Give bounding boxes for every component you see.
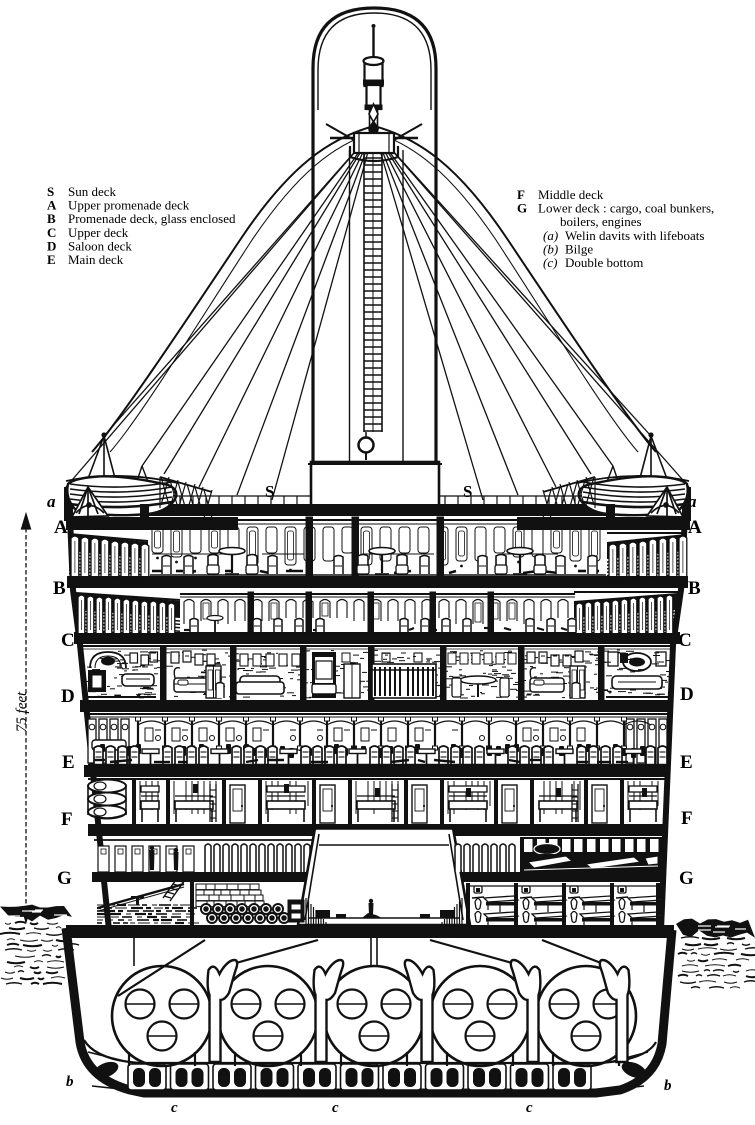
svg-text:c: c [526,1100,533,1116]
svg-text:C: C [61,630,75,651]
svg-text:a: a [47,492,56,511]
svg-text:b: b [664,1078,672,1094]
svg-text:D: D [61,686,75,707]
svg-text:c: c [171,1100,178,1116]
svg-text:Main deck: Main deck [68,252,124,267]
svg-text:B: B [53,578,66,599]
svg-text:(c): (c) [543,255,557,270]
svg-text:S: S [265,482,274,501]
svg-text:E: E [62,752,75,773]
svg-text:F: F [61,809,73,830]
svg-text:C: C [678,630,692,651]
svg-text:D: D [680,684,694,705]
svg-text:G: G [57,868,72,889]
svg-text:F: F [681,808,693,829]
svg-text:G: G [679,868,694,889]
svg-text:75 feet: 75 feet [14,691,30,732]
svg-text:c: c [332,1100,339,1116]
svg-text:E: E [47,252,56,267]
svg-text:G: G [517,201,527,216]
svg-text:Double bottom: Double bottom [565,255,643,270]
svg-text:b: b [66,1074,74,1090]
svg-text:E: E [680,752,693,773]
svg-text:B: B [688,578,701,599]
